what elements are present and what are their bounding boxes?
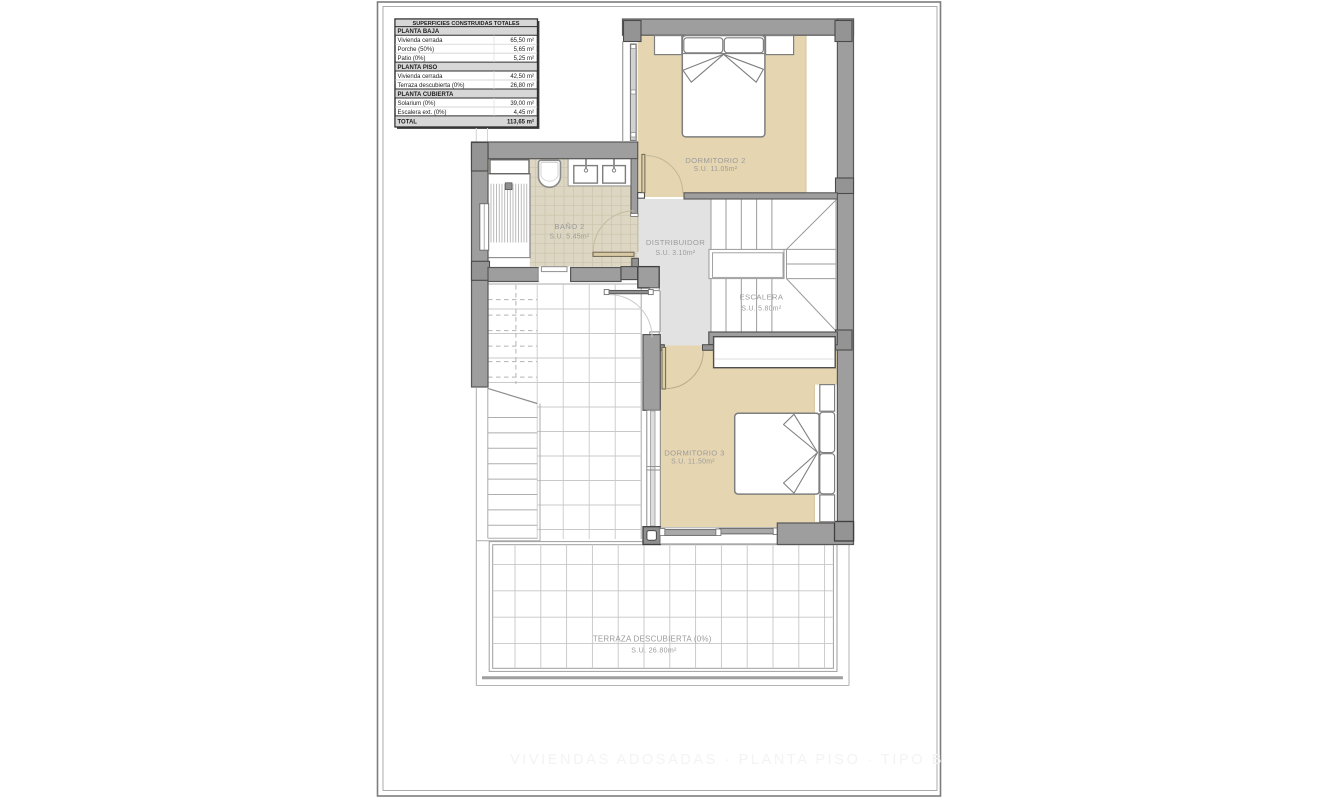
svg-text:39,00 m²: 39,00 m² [510,101,534,107]
svg-text:DORMITORIO 2: DORMITORIO 2 [685,156,745,165]
svg-text:42,50 m²: 42,50 m² [510,74,534,80]
svg-text:113,65 m²: 113,65 m² [507,119,534,126]
svg-text:SUPERFICIES CONSTRUIDAS TOTALE: SUPERFICIES CONSTRUIDAS TOTALES [412,21,519,27]
svg-text:4,45 m²: 4,45 m² [514,110,534,116]
svg-text:S.U. 11.50m²: S.U. 11.50m² [671,459,715,466]
svg-text:S.U. 5.80m²: S.U. 5.80m² [741,306,781,313]
svg-text:S.U. 11.05m²: S.U. 11.05m² [694,166,738,173]
svg-text:TERRAZA DESCUBIERTA (0%): TERRAZA DESCUBIERTA (0%) [593,635,712,644]
svg-text:Escalera ext. (0%): Escalera ext. (0%) [398,110,447,116]
svg-text:PLANTA CUBIERTA: PLANTA CUBIERTA [398,92,455,98]
svg-text:VIVIENDAS ADOSADAS · PLANTA PI: VIVIENDAS ADOSADAS · PLANTA PISO · TIPO … [510,752,944,768]
svg-text:Patio (0%): Patio (0%) [398,56,426,62]
svg-text:65,50 m²: 65,50 m² [510,38,534,44]
svg-text:DORMITORIO 3: DORMITORIO 3 [664,449,724,458]
svg-text:TOTAL: TOTAL [398,120,418,126]
svg-text:S.U. 5.45m²: S.U. 5.45m² [549,234,589,241]
svg-text:Terraza descubierta (0%): Terraza descubierta (0%) [398,83,465,89]
svg-text:DISTRIBUIDOR: DISTRIBUIDOR [646,238,705,247]
svg-text:ESCALERA: ESCALERA [739,293,783,302]
svg-text:S.U. 3.10m²: S.U. 3.10m² [655,250,695,257]
svg-text:Vivienda cerrada: Vivienda cerrada [398,38,444,44]
svg-text:Vivienda cerrada: Vivienda cerrada [398,74,444,80]
svg-text:S.U. 26.80m²: S.U. 26.80m² [631,647,677,655]
svg-text:5,65 m²: 5,65 m² [514,47,534,53]
svg-text:BAÑO 2: BAÑO 2 [554,222,584,231]
svg-text:Porche (50%): Porche (50%) [398,47,435,53]
svg-text:26,80 m²: 26,80 m² [510,83,534,89]
svg-text:PLANTA BAJA: PLANTA BAJA [398,29,440,35]
svg-text:5,25 m²: 5,25 m² [514,56,534,62]
svg-text:PLANTA PISO: PLANTA PISO [398,65,438,71]
svg-text:Solarium (0%): Solarium (0%) [398,101,436,107]
